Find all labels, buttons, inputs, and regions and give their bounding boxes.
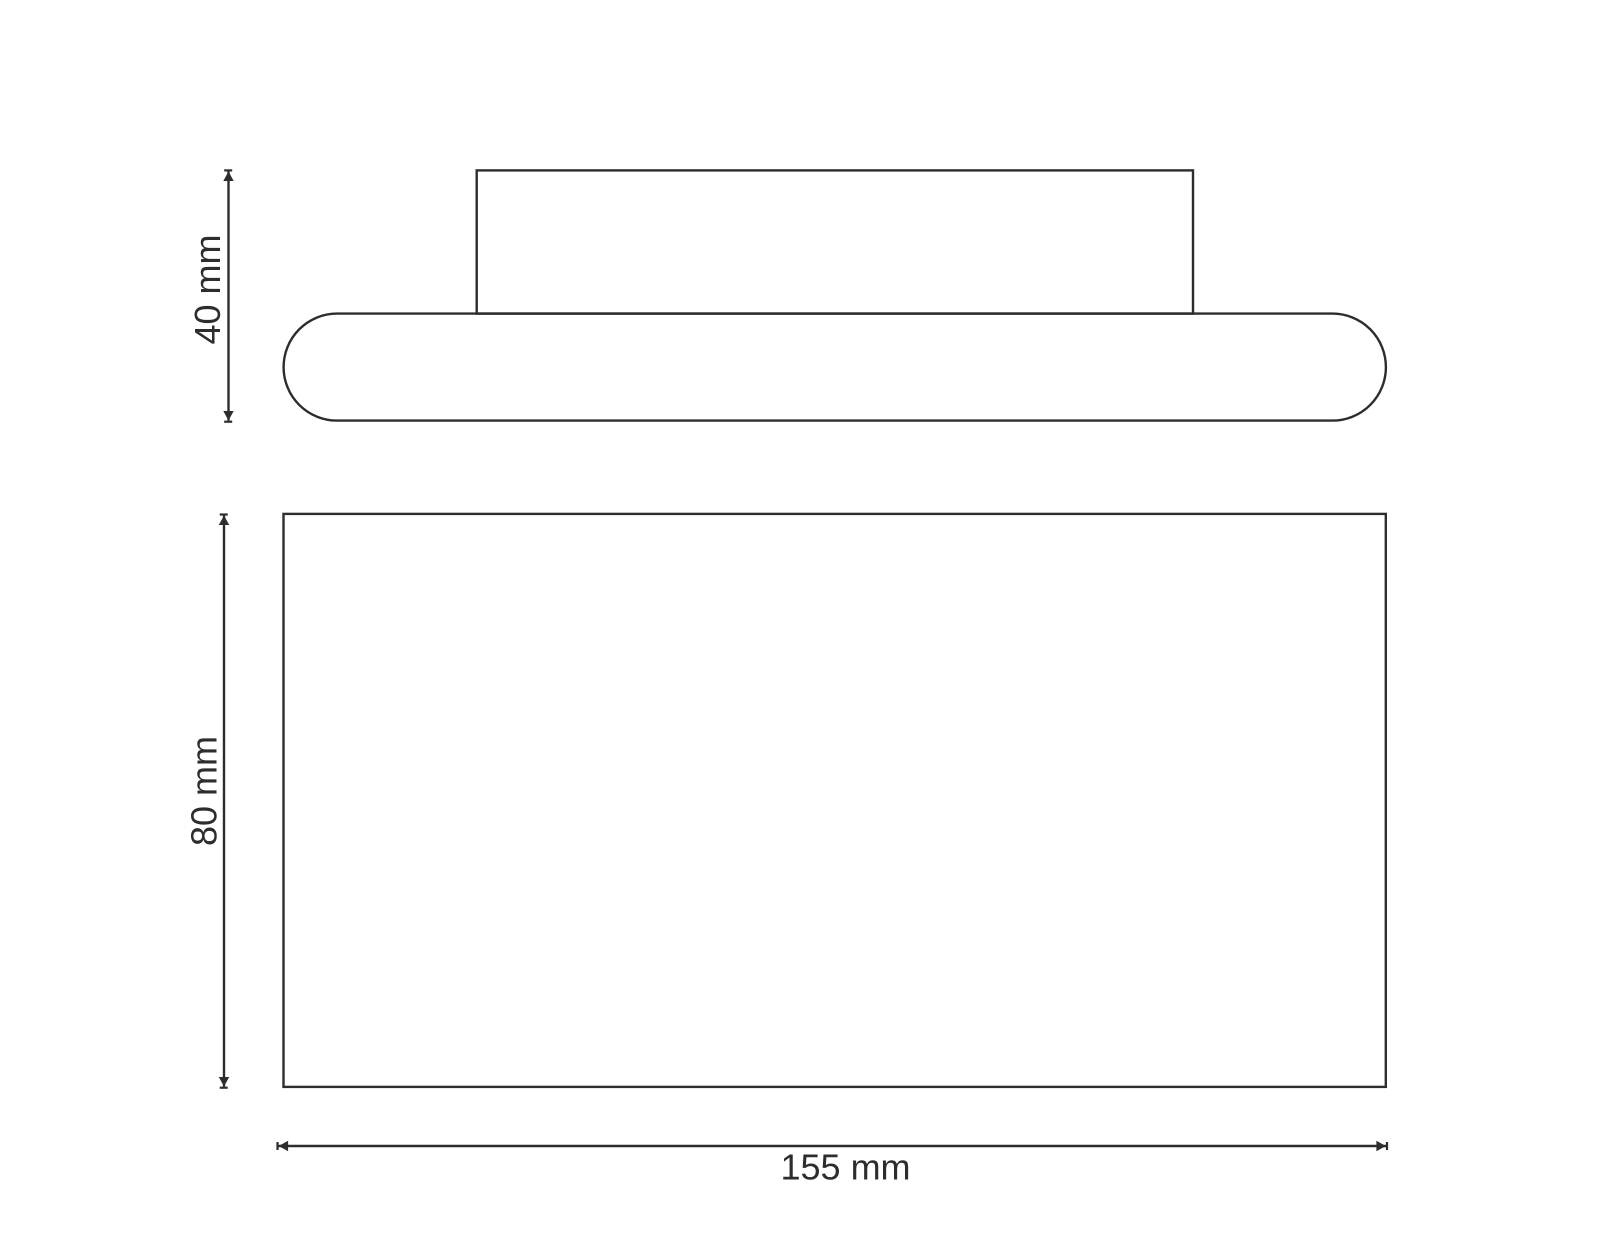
svg-text:80 mm: 80 mm [184,736,225,846]
svg-text:40 mm: 40 mm [187,234,228,344]
svg-text:155 mm: 155 mm [781,1147,911,1188]
